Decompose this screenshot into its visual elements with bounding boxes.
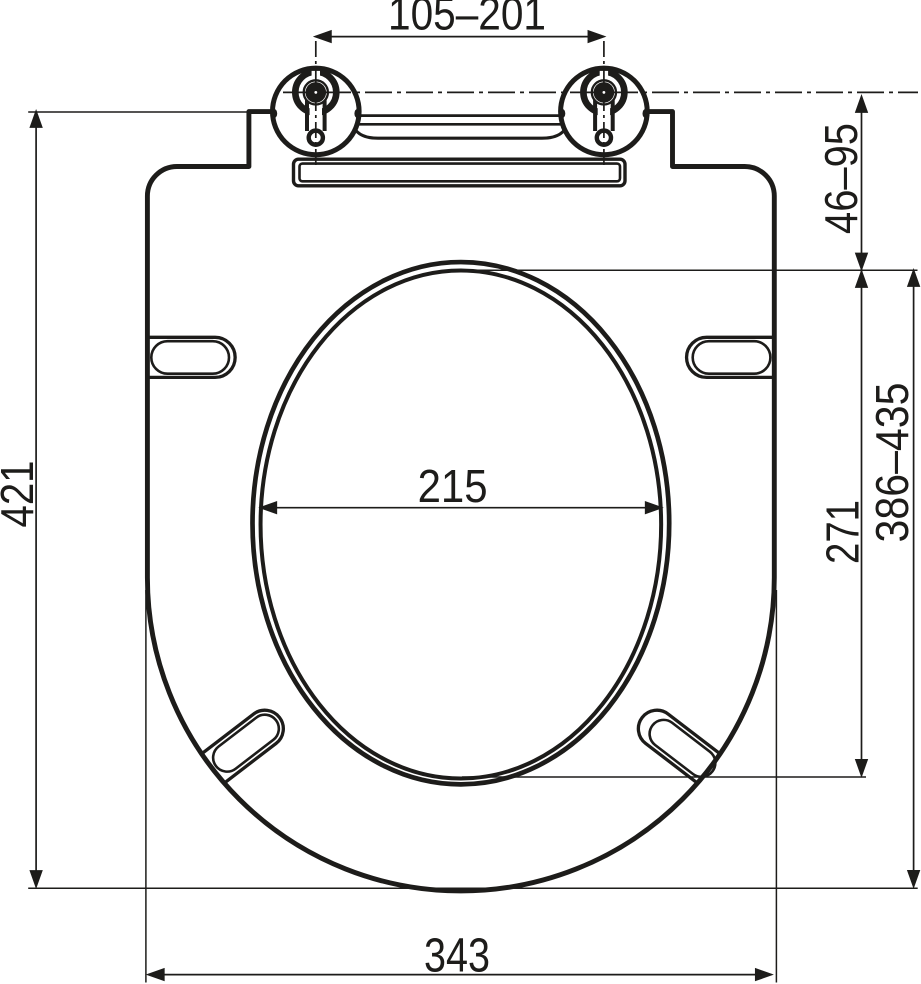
svg-text:215: 215 [418,460,488,512]
svg-text:271: 271 [816,500,868,564]
svg-text:386–435: 386–435 [866,383,918,543]
svg-text:46–95: 46–95 [815,123,867,234]
svg-text:421: 421 [0,461,43,528]
svg-text:343: 343 [424,930,490,983]
svg-text:105–201: 105–201 [388,0,546,40]
